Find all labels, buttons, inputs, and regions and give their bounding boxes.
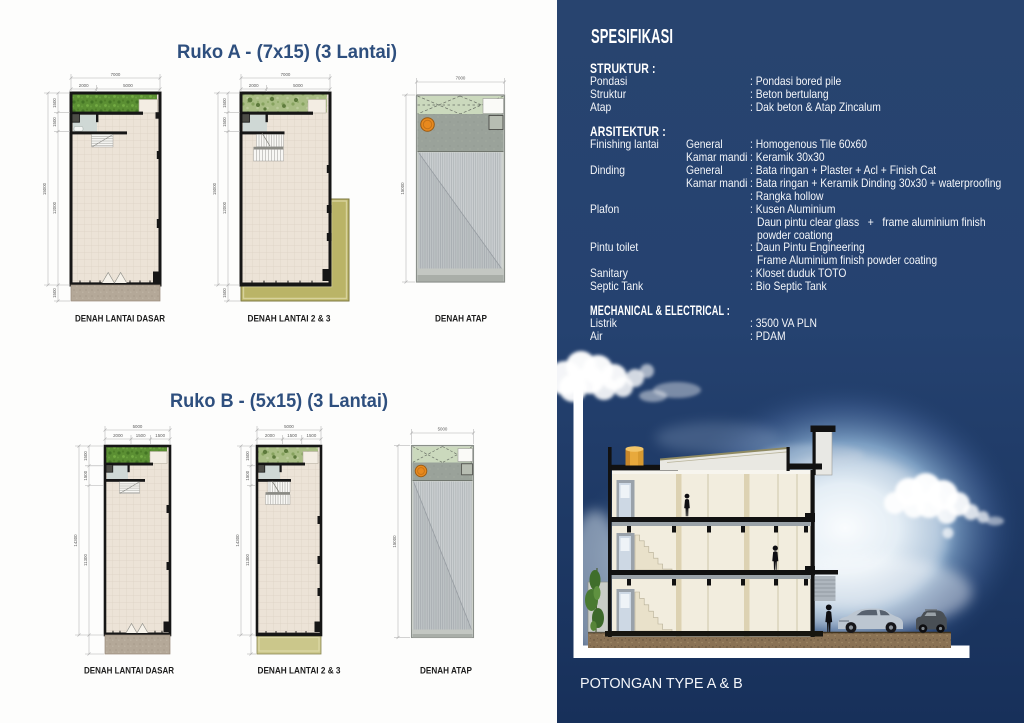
svg-text:12000: 12000 <box>52 201 57 214</box>
svg-text:11300: 11300 <box>83 554 88 566</box>
svg-text:5000: 5000 <box>133 424 143 429</box>
svg-text:1500: 1500 <box>52 98 57 108</box>
svg-text:1500: 1500 <box>222 98 227 108</box>
svg-text:5000: 5000 <box>438 427 448 432</box>
svg-text:1500: 1500 <box>52 117 57 127</box>
svg-text:DENAH LANTAI DASAR: DENAH LANTAI DASAR <box>84 666 174 677</box>
svg-text:7000: 7000 <box>111 72 121 77</box>
svg-text:1500: 1500 <box>245 451 250 461</box>
svg-text:DENAH ATAP: DENAH ATAP <box>435 314 488 325</box>
svg-text:1500: 1500 <box>222 288 227 298</box>
svg-text:1500: 1500 <box>307 433 317 438</box>
svg-text:1500: 1500 <box>155 433 165 438</box>
svg-text:2000: 2000 <box>113 433 123 438</box>
svg-text:DENAH LANTAI 2 & 3: DENAH LANTAI 2 & 3 <box>258 666 341 677</box>
svg-text:DENAH ATAP: DENAH ATAP <box>420 666 473 677</box>
svg-text:DENAH LANTAI DASAR: DENAH LANTAI DASAR <box>75 314 165 325</box>
svg-text:15000: 15000 <box>400 182 405 195</box>
svg-text:1500: 1500 <box>52 288 57 298</box>
svg-text:15000: 15000 <box>212 182 217 195</box>
svg-text:1500: 1500 <box>83 451 88 461</box>
svg-text:Ruko A - (7x15) (3 Lantai): Ruko A - (7x15) (3 Lantai) <box>177 41 397 63</box>
svg-text:2000: 2000 <box>79 83 89 88</box>
svg-text:14300: 14300 <box>235 534 240 547</box>
svg-text:2000: 2000 <box>249 83 259 88</box>
svg-text:1500: 1500 <box>83 470 88 480</box>
svg-text:1500: 1500 <box>222 117 227 127</box>
svg-text:1500: 1500 <box>245 470 250 480</box>
svg-text:15000: 15000 <box>42 182 47 195</box>
svg-text:14300: 14300 <box>73 534 78 547</box>
svg-text:12000: 12000 <box>222 201 227 214</box>
svg-text:1500: 1500 <box>136 433 146 438</box>
svg-text:11300: 11300 <box>245 554 250 566</box>
svg-text:DENAH LANTAI 2 & 3: DENAH LANTAI 2 & 3 <box>248 314 331 325</box>
svg-text:5000: 5000 <box>123 83 133 88</box>
svg-text:15000: 15000 <box>392 535 397 548</box>
svg-text:1500: 1500 <box>287 433 297 438</box>
svg-text:2000: 2000 <box>265 433 275 438</box>
svg-text:7000: 7000 <box>456 76 466 81</box>
svg-text:5000: 5000 <box>293 83 303 88</box>
svg-text:Ruko B - (5x15) (3 Lantai): Ruko B - (5x15) (3 Lantai) <box>170 390 388 412</box>
svg-text:5000: 5000 <box>284 424 294 429</box>
svg-text:7000: 7000 <box>281 72 291 77</box>
